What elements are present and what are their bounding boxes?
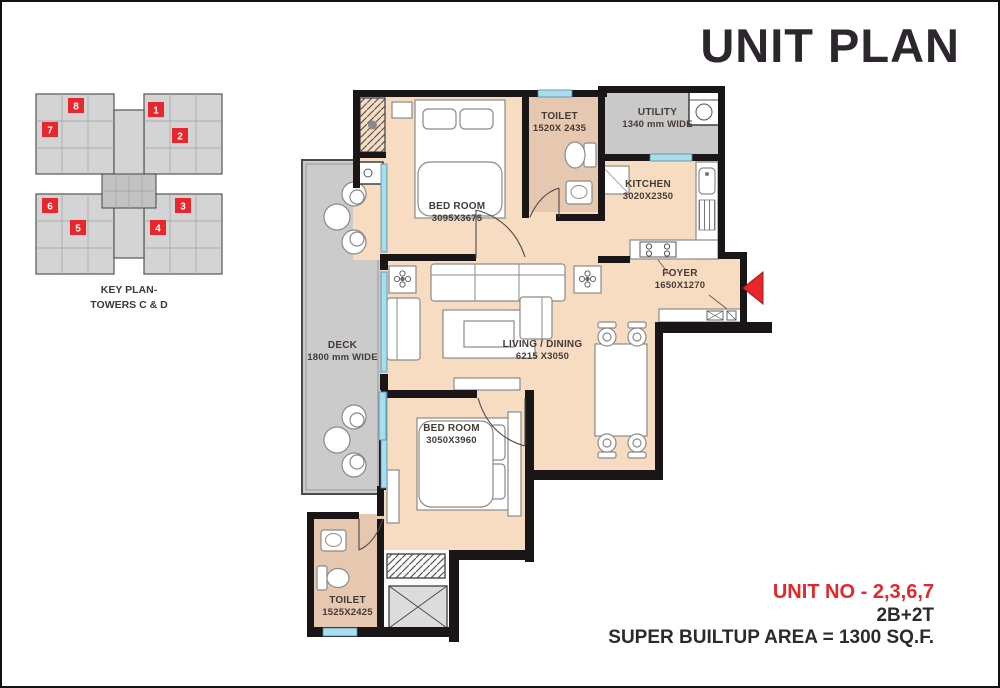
toilet1-window — [538, 90, 572, 97]
deck-glazing — [381, 164, 387, 252]
builtup-area-text: SUPER BUILTUP AREA = 1300 SQ.F. — [608, 627, 934, 649]
dresser-icon — [387, 470, 399, 523]
room-label-foyer: FOYER 1650X1270 — [630, 267, 730, 292]
unit-marker-1: 1 — [153, 106, 159, 117]
unit-marker-3: 3 — [180, 202, 186, 213]
bedroom2-window — [379, 392, 386, 440]
unit-marker-5: 5 — [75, 224, 81, 235]
unit-number-text: UNIT NO - 2,3,6,7 — [608, 581, 934, 605]
room-label-toilet1: TOILET 1520X 2435 — [517, 110, 602, 135]
unit-summary: UNIT NO - 2,3,6,7 2B+2T SUPER BUILTUP AR… — [608, 581, 934, 649]
room-label-bedroom1: BED ROOM 3095X3675 — [397, 200, 517, 225]
unit-marker-4: 4 — [155, 224, 161, 235]
key-plan-caption: KEY PLAN- TOWERS C & D — [30, 283, 228, 313]
room-label-deck: DECK 1800 mm WIDE — [300, 339, 385, 364]
unit-marker-7: 7 — [47, 126, 53, 137]
sofa-icon — [431, 264, 565, 301]
unit-marker-8: 8 — [73, 102, 79, 113]
unit-marker-2: 2 — [177, 132, 183, 143]
room-label-living-dining: LIVING / DINING 6215 X3050 — [480, 338, 605, 363]
stove-icon — [640, 242, 676, 257]
tv-unit-icon — [454, 378, 520, 390]
unit-marker-6: 6 — [47, 202, 53, 213]
key-plan-caption-line1: KEY PLAN- — [30, 283, 228, 298]
wardrobe-hatch-icon — [387, 554, 445, 578]
room-label-toilet2: TOILET 1525X2425 — [305, 594, 390, 619]
page-title: UNIT PLAN — [700, 18, 960, 73]
room-label-bedroom2: BED ROOM 3050X3960 — [394, 422, 509, 447]
room-label-utility: UTILITY 1340 mm WIDE — [600, 106, 715, 131]
configuration-text: 2B+2T — [608, 605, 934, 627]
unit-plan-page: UNIT PLAN 8 7 1 2 6 5 — [0, 0, 1000, 688]
toilet2-window — [323, 628, 357, 636]
key-plan-drawing: 8 7 1 2 6 5 3 4 — [30, 88, 228, 280]
room-label-kitchen: KITCHEN 3020X2350 — [598, 178, 698, 203]
kitchen-window — [650, 154, 692, 161]
sink-icon — [699, 168, 715, 194]
key-plan-building — [36, 94, 222, 274]
floor-plan-drawing — [297, 82, 772, 652]
armchair-icon — [387, 298, 420, 360]
shaft-icon — [389, 586, 447, 628]
key-plan-caption-line2: TOWERS C & D — [30, 298, 228, 313]
side-chair-icon — [520, 297, 552, 339]
